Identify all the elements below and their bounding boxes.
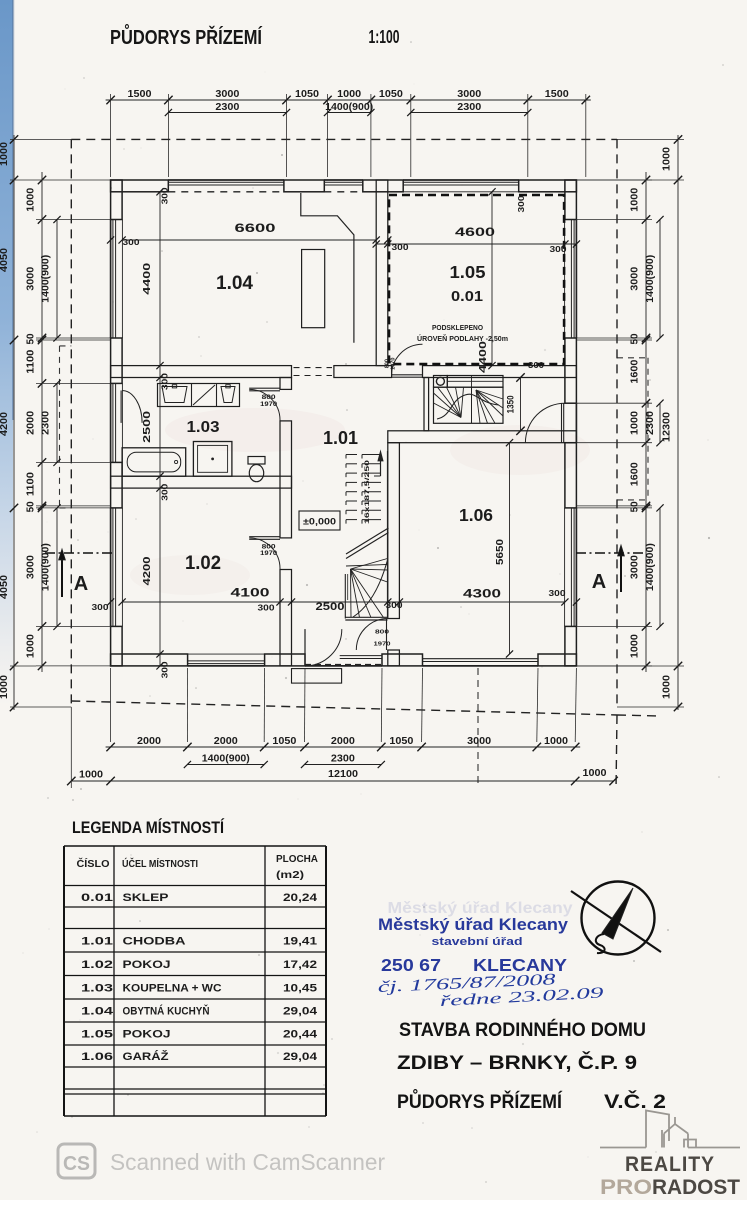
svg-text:LEGENDA MÍSTNOSTÍ: LEGENDA MÍSTNOSTÍ xyxy=(72,818,224,837)
svg-text:4300: 4300 xyxy=(463,589,501,601)
svg-text:POKOJ: POKOJ xyxy=(123,1029,171,1041)
svg-text:50: 50 xyxy=(26,501,37,512)
svg-text:29,04: 29,04 xyxy=(283,1051,318,1063)
svg-text:3000: 3000 xyxy=(26,555,37,579)
svg-text:4050: 4050 xyxy=(0,574,10,598)
svg-text:2000: 2000 xyxy=(331,736,355,747)
svg-text:50: 50 xyxy=(630,333,641,344)
svg-text:1970: 1970 xyxy=(391,358,397,370)
svg-text:2300: 2300 xyxy=(41,410,52,434)
svg-text:1400(900): 1400(900) xyxy=(645,543,656,591)
svg-text:1000: 1000 xyxy=(26,187,37,211)
svg-text:800: 800 xyxy=(375,630,389,636)
svg-text:1.04: 1.04 xyxy=(81,1006,114,1018)
svg-text:2300: 2300 xyxy=(645,410,656,434)
svg-text:1:100: 1:100 xyxy=(369,27,400,47)
svg-text:SKLEP: SKLEP xyxy=(123,892,169,904)
svg-text:1400(900): 1400(900) xyxy=(41,543,52,591)
svg-text:800: 800 xyxy=(262,395,277,401)
svg-text:Městský úřad Klecany: Městský úřad Klecany xyxy=(378,916,569,934)
svg-text:1970: 1970 xyxy=(260,402,278,408)
svg-text:2300: 2300 xyxy=(457,102,481,113)
svg-text:(m2): (m2) xyxy=(276,869,304,881)
svg-text:20,24: 20,24 xyxy=(283,892,318,904)
svg-text:2500: 2500 xyxy=(316,601,345,613)
svg-text:1600: 1600 xyxy=(630,462,641,486)
svg-text:0.01: 0.01 xyxy=(451,288,483,305)
svg-text:ÚČEL MÍSTNOSTI: ÚČEL MÍSTNOSTI xyxy=(122,857,198,870)
svg-text:300: 300 xyxy=(550,244,567,254)
svg-text:300: 300 xyxy=(160,483,170,500)
svg-text:1400(900): 1400(900) xyxy=(325,102,373,113)
svg-text:4050: 4050 xyxy=(0,248,10,272)
svg-text:1000: 1000 xyxy=(662,147,673,171)
svg-text:800: 800 xyxy=(262,545,277,551)
svg-text:CHODBA: CHODBA xyxy=(123,936,186,948)
svg-text:300: 300 xyxy=(160,187,170,204)
svg-text:1000: 1000 xyxy=(583,768,607,779)
svg-text:1050: 1050 xyxy=(389,736,413,747)
svg-text:3000: 3000 xyxy=(457,89,481,100)
svg-text:1400(900): 1400(900) xyxy=(41,255,52,303)
svg-text:1000: 1000 xyxy=(0,142,10,166)
svg-text:300: 300 xyxy=(160,373,170,390)
svg-text:3000: 3000 xyxy=(26,266,37,290)
svg-text:300: 300 xyxy=(516,195,526,212)
svg-text:1000: 1000 xyxy=(630,187,641,211)
svg-text:1000: 1000 xyxy=(630,634,641,658)
svg-text:300: 300 xyxy=(392,242,409,252)
svg-text:4200: 4200 xyxy=(141,556,153,585)
svg-text:Scanned with CamScanner: Scanned with CamScanner xyxy=(110,1149,385,1175)
svg-text:300: 300 xyxy=(123,237,140,247)
svg-text:KOUPELNA + WC: KOUPELNA + WC xyxy=(123,983,222,995)
svg-text:300: 300 xyxy=(386,600,403,610)
svg-text:1.02: 1.02 xyxy=(81,959,113,971)
svg-text:50: 50 xyxy=(26,333,37,344)
svg-text:A: A xyxy=(74,573,88,595)
svg-text:PŮDORYS PŘÍZEMÍ: PŮDORYS PŘÍZEMÍ xyxy=(397,1090,563,1113)
svg-text:1.05: 1.05 xyxy=(450,262,486,282)
svg-text:3000: 3000 xyxy=(215,89,239,100)
svg-text:300: 300 xyxy=(258,603,275,613)
svg-text:1.02: 1.02 xyxy=(185,553,221,574)
svg-text:STAVBA RODINNÉHO DOMU: STAVBA RODINNÉHO DOMU xyxy=(399,1019,646,1041)
svg-text:250 67: 250 67 xyxy=(381,955,441,975)
svg-text:GARÁŽ: GARÁŽ xyxy=(123,1050,169,1063)
svg-text:19,41: 19,41 xyxy=(283,936,317,948)
svg-text:12100: 12100 xyxy=(328,769,358,780)
svg-text:1.06: 1.06 xyxy=(459,505,493,525)
svg-text:17,42: 17,42 xyxy=(283,959,317,971)
svg-text:1000: 1000 xyxy=(337,89,361,100)
svg-text:1500: 1500 xyxy=(545,89,569,100)
svg-text:0.01: 0.01 xyxy=(81,892,113,904)
svg-text:1100: 1100 xyxy=(26,472,37,496)
svg-text:ČÍSLO: ČÍSLO xyxy=(77,857,110,870)
svg-text:50: 50 xyxy=(630,501,641,512)
svg-text:ÚROVEŇ PODLAHY -2,50m: ÚROVEŇ PODLAHY -2,50m xyxy=(417,334,508,343)
svg-text:6600: 6600 xyxy=(235,223,276,235)
svg-text:REALITY: REALITY xyxy=(625,1153,715,1176)
svg-text:ZDIBY – BRNKY, Č.P. 9: ZDIBY – BRNKY, Č.P. 9 xyxy=(397,1052,637,1074)
svg-text:2000: 2000 xyxy=(214,736,238,747)
svg-text:1.04: 1.04 xyxy=(216,273,253,294)
svg-text:29,04: 29,04 xyxy=(283,1006,318,1018)
svg-text:PLOCHA: PLOCHA xyxy=(276,853,318,865)
svg-text:1970: 1970 xyxy=(374,641,391,647)
svg-text:PŮDORYS PŘÍZEMÍ: PŮDORYS PŘÍZEMÍ xyxy=(110,23,263,49)
svg-text:1.01: 1.01 xyxy=(81,936,113,948)
svg-text:2300: 2300 xyxy=(215,102,239,113)
svg-text:2500: 2500 xyxy=(141,411,153,443)
svg-text:RADOST: RADOST xyxy=(652,1175,740,1199)
svg-text:300: 300 xyxy=(160,661,170,678)
svg-text:2300: 2300 xyxy=(331,754,355,765)
svg-text:stavební úřad: stavební úřad xyxy=(432,936,523,948)
svg-text:4200: 4200 xyxy=(0,411,10,435)
svg-text:4600: 4600 xyxy=(455,227,495,239)
svg-text:1400(900): 1400(900) xyxy=(645,255,656,303)
svg-text:1100: 1100 xyxy=(26,349,37,373)
svg-text:±0,000: ±0,000 xyxy=(303,517,336,527)
svg-text:3000: 3000 xyxy=(630,555,641,579)
svg-text:1400(900): 1400(900) xyxy=(202,754,250,765)
svg-text:2000: 2000 xyxy=(26,410,37,434)
svg-text:300: 300 xyxy=(92,602,109,612)
svg-text:3000: 3000 xyxy=(467,736,491,747)
svg-text:1050: 1050 xyxy=(272,736,296,747)
svg-text:16x187,5/250: 16x187,5/250 xyxy=(364,459,371,524)
svg-text:3000: 3000 xyxy=(630,266,641,290)
svg-text:1.05: 1.05 xyxy=(81,1029,113,1041)
svg-text:2000: 2000 xyxy=(137,736,161,747)
svg-text:POKOJ: POKOJ xyxy=(123,959,171,971)
svg-text:1000: 1000 xyxy=(630,410,641,434)
svg-text:Městský úřad Klecany: Městský úřad Klecany xyxy=(388,900,573,917)
svg-text:1000: 1000 xyxy=(79,770,103,781)
svg-text:1.03: 1.03 xyxy=(187,419,220,436)
svg-text:CS: CS xyxy=(63,1153,90,1175)
svg-text:A: A xyxy=(592,571,606,593)
svg-text:300: 300 xyxy=(549,588,566,598)
svg-text:4400: 4400 xyxy=(141,263,153,295)
svg-text:1000: 1000 xyxy=(26,634,37,658)
svg-text:1350: 1350 xyxy=(506,395,517,413)
svg-text:1.03: 1.03 xyxy=(81,983,113,995)
svg-text:20,44: 20,44 xyxy=(283,1029,318,1041)
svg-text:12300: 12300 xyxy=(662,412,673,442)
svg-text:1050: 1050 xyxy=(379,89,403,100)
svg-text:1000: 1000 xyxy=(0,675,10,699)
svg-text:1600: 1600 xyxy=(630,359,641,383)
svg-text:1050: 1050 xyxy=(295,89,319,100)
svg-text:PODSKLEPENO: PODSKLEPENO xyxy=(432,325,484,332)
svg-text:1.06: 1.06 xyxy=(81,1051,113,1063)
svg-text:PRO: PRO xyxy=(600,1175,652,1199)
svg-text:1970: 1970 xyxy=(260,551,278,557)
svg-text:1000: 1000 xyxy=(544,736,568,747)
svg-text:1000: 1000 xyxy=(662,675,673,699)
svg-text:300: 300 xyxy=(528,361,545,370)
svg-text:10,45: 10,45 xyxy=(283,983,317,995)
svg-text:1500: 1500 xyxy=(128,89,152,100)
svg-text:4100: 4100 xyxy=(231,588,270,600)
svg-text:4400: 4400 xyxy=(477,341,489,373)
svg-text:5650: 5650 xyxy=(494,539,506,565)
svg-text:1.01: 1.01 xyxy=(323,428,358,448)
svg-text:V.Č. 2: V.Č. 2 xyxy=(604,1091,666,1113)
svg-text:OBYTNÁ KUCHYŇ: OBYTNÁ KUCHYŇ xyxy=(123,1005,210,1018)
